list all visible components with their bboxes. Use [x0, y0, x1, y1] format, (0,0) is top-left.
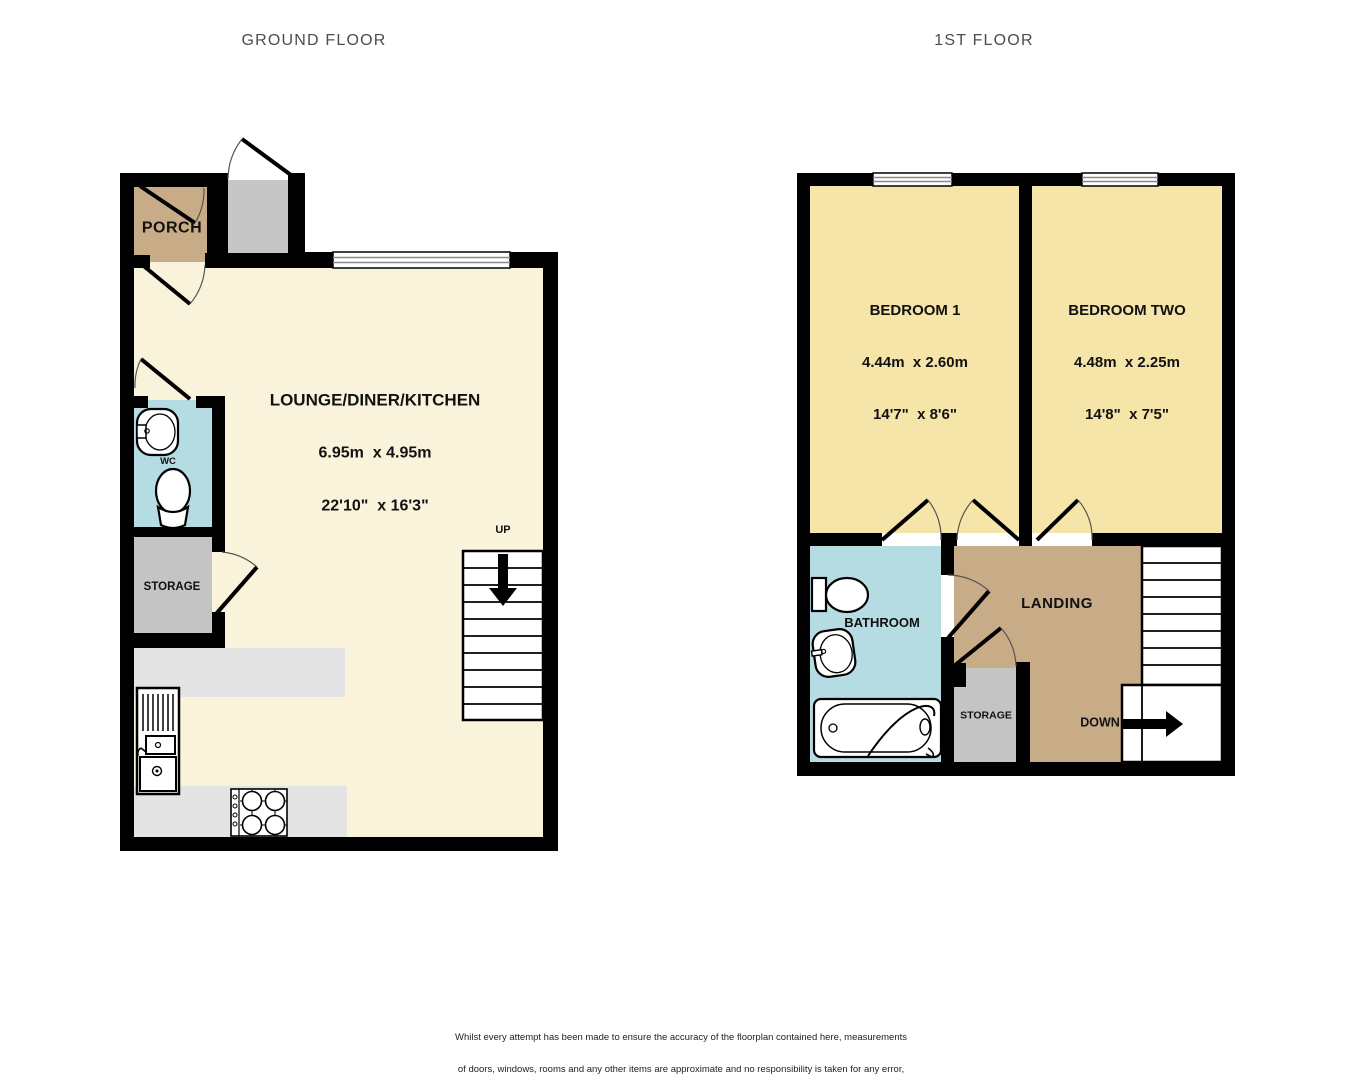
first-floor-title: 1ST FLOOR: [934, 32, 1033, 50]
stairs-up: [463, 551, 543, 720]
bedroom2-label: BEDROOM TWO 4.48m x 2.25m 14'8" x 7'5": [1068, 267, 1186, 459]
bedroom2-metric: 4.48m x 2.25m: [1068, 355, 1186, 371]
lounge-metric: 6.95m x 4.95m: [270, 445, 481, 462]
floorplan-page: GROUND FLOOR 1ST FLOOR PORCH WC STORAGE …: [0, 0, 1355, 1080]
lounge-imperial: 22'10" x 16'3": [270, 498, 481, 515]
bath-icon: [814, 699, 941, 757]
kitchen-sink-icon: [137, 688, 179, 794]
bedroom1-name: BEDROOM 1: [862, 303, 968, 319]
bathroom-toilet-icon: [812, 578, 868, 612]
storage-first-label: STORAGE: [960, 710, 1012, 721]
wc-toilet-icon: [156, 469, 190, 528]
lounge-label: LOUNGE/DINER/KITCHEN 6.95m x 4.95m 22'10…: [270, 356, 481, 551]
bedroom2-name: BEDROOM TWO: [1068, 303, 1186, 319]
bedroom1-label: BEDROOM 1 4.44m x 2.60m 14'7" x 8'6": [862, 267, 968, 459]
disclaimer-text: Whilst every attempt has been made to en…: [452, 1011, 909, 1080]
up-label: UP: [495, 525, 510, 537]
ground-floor-title: GROUND FLOOR: [241, 32, 386, 50]
storage-ground-label: STORAGE: [144, 581, 201, 593]
bedroom2-window: [1082, 173, 1158, 186]
landing-label: LANDING: [1021, 596, 1093, 612]
bedroom1-window: [873, 173, 952, 186]
wc-label: WC: [160, 457, 176, 467]
lounge-name: LOUNGE/DINER/KITCHEN: [270, 392, 481, 409]
hob-icon: [231, 789, 287, 836]
lounge-window: [333, 252, 510, 268]
bathroom-label: BATHROOM: [844, 616, 920, 630]
floorplan-drawing: [0, 0, 1355, 1080]
wc-basin-icon: [137, 409, 178, 455]
front-door: [228, 139, 295, 179]
porch-label: PORCH: [142, 219, 202, 236]
disclaimer-line: Whilst every attempt has been made to en…: [452, 1033, 909, 1044]
first-floor-plan: [797, 173, 1235, 776]
entry-recess: [225, 180, 290, 255]
bedroom2-imperial: 14'8" x 7'5": [1068, 407, 1186, 423]
bedroom1-metric: 4.44m x 2.60m: [862, 355, 968, 371]
bedroom1-imperial: 14'7" x 8'6": [862, 407, 968, 423]
down-label: DOWN: [1080, 716, 1120, 730]
disclaimer-line: of doors, windows, rooms and any other i…: [452, 1065, 909, 1076]
